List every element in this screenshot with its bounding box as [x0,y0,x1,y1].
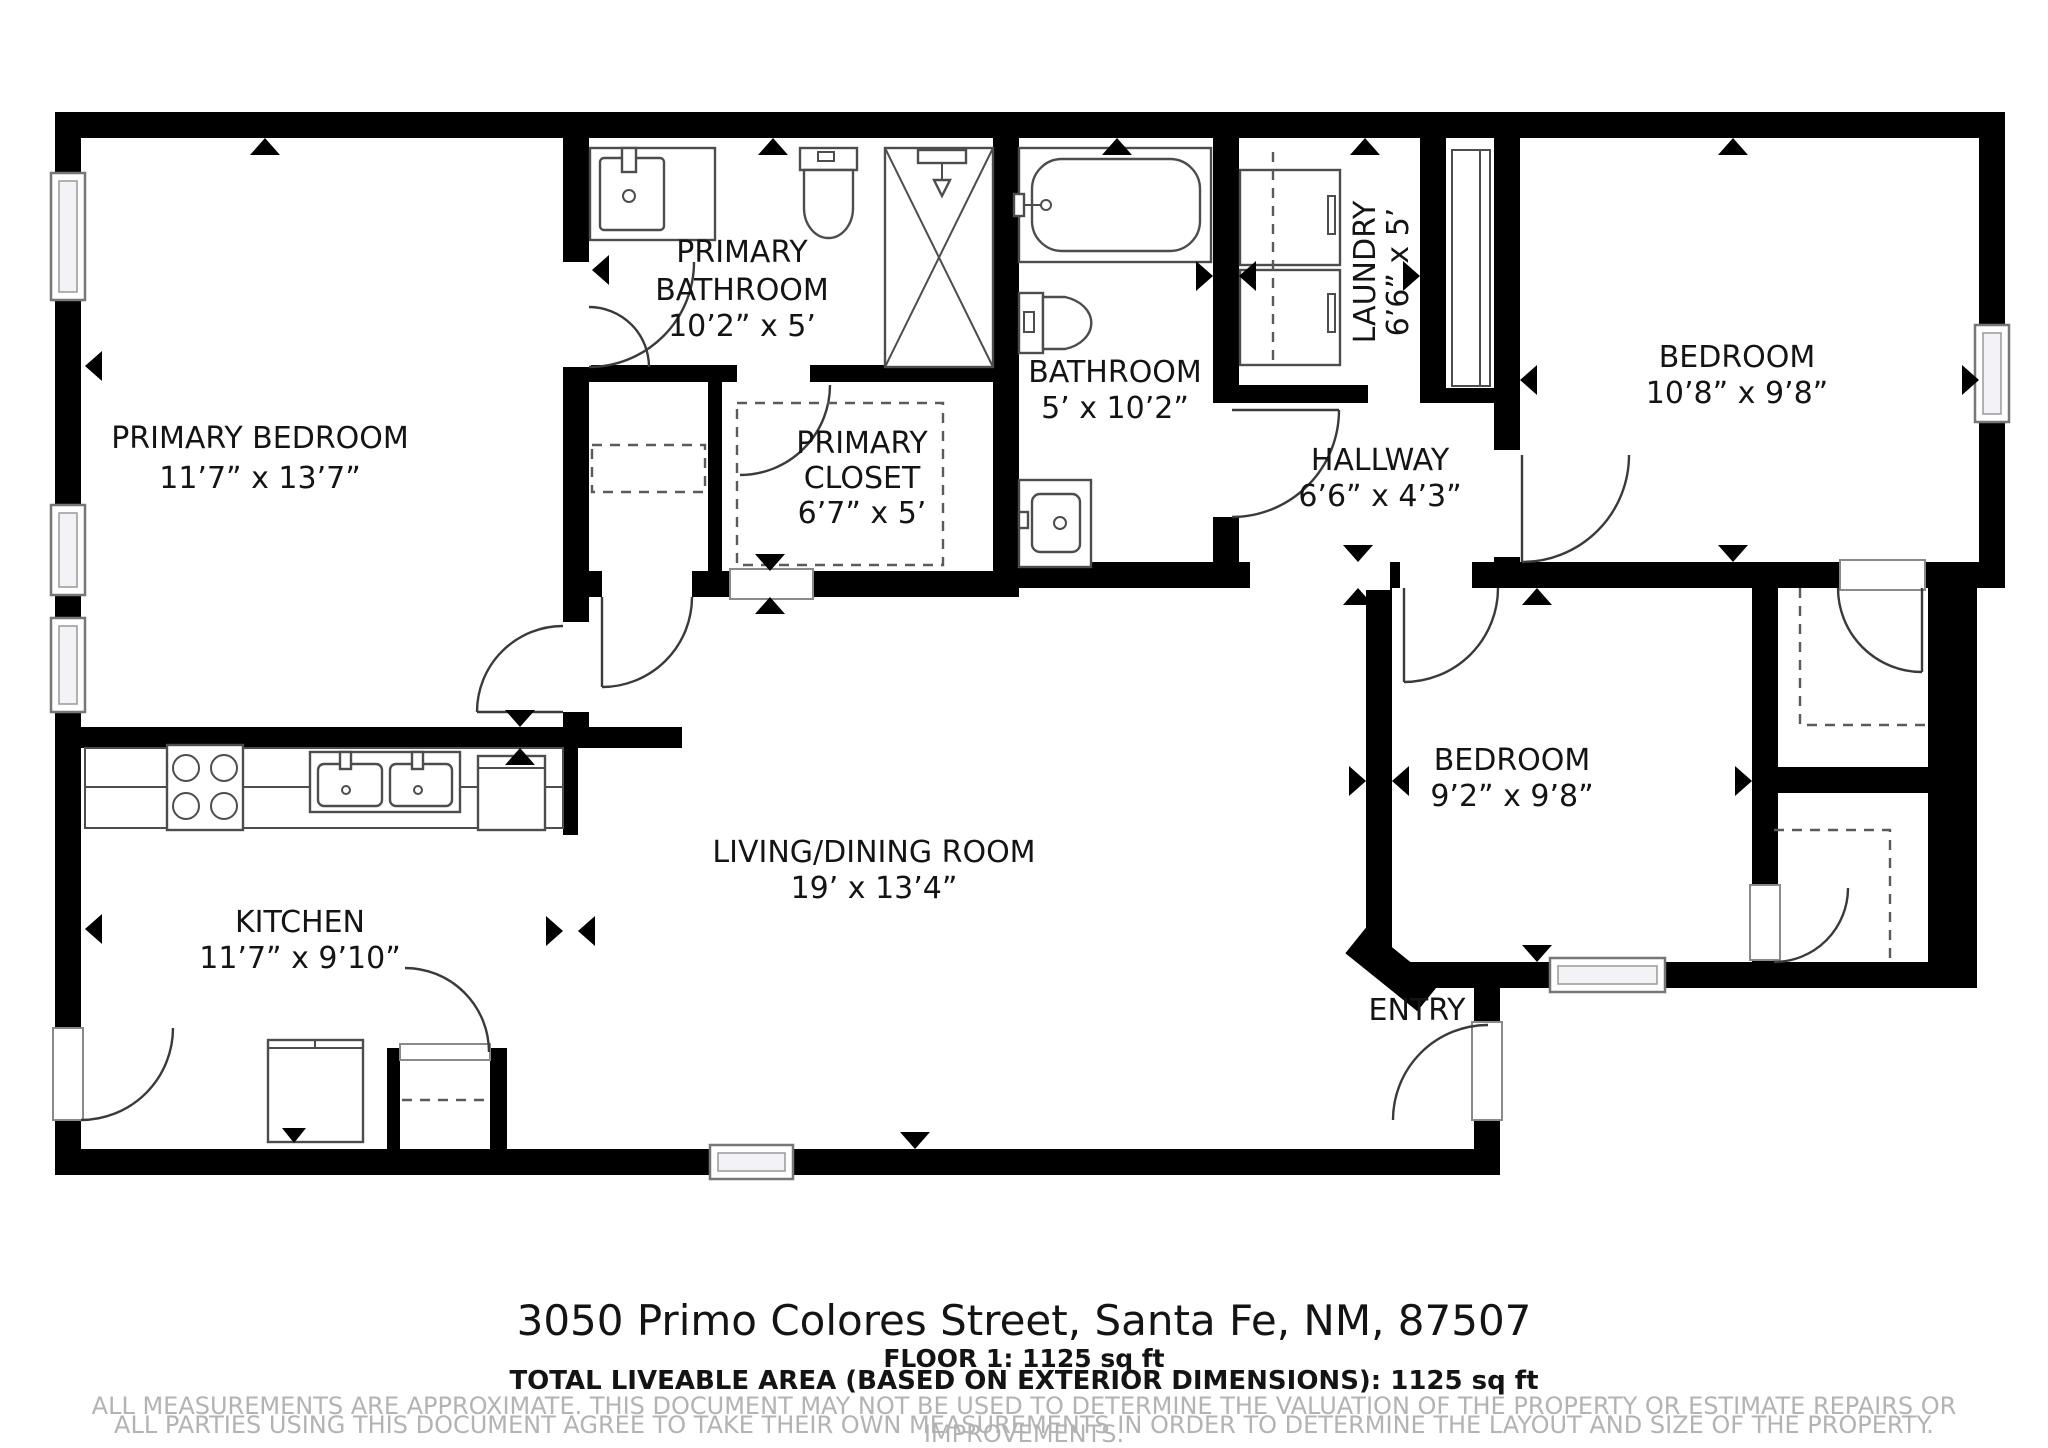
opening-bedroom1-door [1492,450,1522,557]
room-dims-primary-closet: 6’7” x 5’ [798,496,927,531]
disclaimer-line-2: ALL PARTIES USING THIS DOCUMENT AGREE TO… [0,1411,2048,1439]
room-dims-laundry: 6’6” x 5’ [1381,208,1416,337]
kitchen-island [268,1040,363,1143]
room-label-primary-bedroom: PRIMARY BEDROOM 11’7” x 13’7” [111,421,409,496]
opening-bathroom-door [1211,403,1241,517]
room-label-entry: ENTRY [1369,993,1467,1028]
room-label-primary-bathroom: PRIMARY BATHROOM 10’2” x 5’ [655,235,829,344]
window-bedroom2 [1550,958,1665,992]
floor-plan-page: PRIMARY BEDROOM 11’7” x 13’7” PRIMARY BA… [0,0,2048,1448]
door-upper-closet [1838,588,1922,672]
walls [55,112,2005,1175]
opening-hallway-living [1250,560,1390,590]
room-dims-bedroom-2: 9’2” x 9’8” [1430,779,1593,814]
linen-shelf [592,445,705,492]
lower-closet-rail [1774,830,1890,962]
toilet-icon [800,148,857,238]
window-primary-bedroom-lower [51,505,85,595]
wall-vestibule-stub [563,727,578,835]
window-living-room [710,1145,793,1179]
opening-entry-door [1472,1022,1502,1120]
floor-plan-drawing: PRIMARY BEDROOM 11’7” x 13’7” PRIMARY BA… [0,0,2048,1448]
wall-laundry-bottom [1239,385,1368,403]
room-name-primary-closet-1: PRIMARY [796,426,928,461]
wall-pantry-left [387,1048,400,1149]
dimension-markers [85,138,1979,1149]
toilet-2-icon [1019,293,1091,353]
room-label-primary-closet: PRIMARY CLOSET 6’7” x 5’ [796,426,928,531]
wall-entry-diagonal [1356,940,1428,998]
address-line: 3050 Primo Colores Street, Santa Fe, NM,… [0,1296,2048,1345]
shower-icon [885,148,993,367]
stove-icon [167,745,243,830]
room-name-primary-bedroom: PRIMARY BEDROOM [111,421,409,456]
wall-exterior-top [55,112,2005,138]
door-arc-primary-bath-2 [589,307,649,367]
room-name-laundry: LAUNDRY [1348,200,1383,343]
opening-kitchen-side-door [53,1028,83,1120]
opening-upper-closet-door [1840,560,1925,590]
window-bedroom1 [1975,325,2009,422]
opening-bedroom2-door [1400,560,1472,590]
room-name-primary-closet-2: CLOSET [804,461,921,496]
wall-kitchen-top [55,727,682,748]
wall-right-lower [1928,562,1977,988]
wall-pantry-right [490,1048,507,1149]
room-name-hallway: HALLWAY [1311,443,1450,478]
wall-linen-divider [708,382,722,571]
wall-bottom-right-band [1410,962,1977,988]
room-label-laundry: LAUNDRY 6’6” x 5’ [1348,200,1416,343]
room-label-bedroom-2: BEDROOM 9’2” x 9’8” [1430,743,1593,814]
door-pantry [405,968,489,1052]
opening-pantry [400,1044,490,1060]
door-arc-kitchen-side [81,1028,173,1120]
upper-closet-rail [1800,588,1928,725]
vanity-sink-icon [590,148,715,240]
room-name-bedroom-1: BEDROOM [1659,340,1816,375]
wall-bathroom-right [1213,138,1239,588]
laundry-cabinet [1452,150,1490,386]
opening-closet-top-door [737,363,810,384]
opening-closet-threshold [730,569,813,599]
room-dims-living-dining: 19’ x 13’4” [791,871,958,906]
room-label-kitchen: KITCHEN 11’7” x 9’10” [199,905,401,976]
room-label-hallway: HALLWAY 6’6” x 4’3” [1298,443,1461,514]
window-kitchen [51,618,85,712]
wall-closets-divider [1752,767,1928,793]
opening-lower-closet-door [1750,885,1780,960]
washer-icon [1240,170,1340,265]
wall-bedroom2-left [1366,562,1392,952]
bathroom-sink-icon [1019,480,1091,567]
door-bedroom1 [1522,455,1629,562]
door-bedroom2 [1404,588,1498,682]
wall-laundry-right [1420,138,1446,403]
room-name-living-dining: LIVING/DINING ROOM [712,835,1035,870]
room-dims-bedroom-1: 10’8” x 9’8” [1646,376,1828,411]
bathtub-icon [1014,148,1211,262]
door-linen-closet [602,597,692,687]
room-name-primary-bathroom-2: BATHROOM [655,273,829,308]
room-name-kitchen: KITCHEN [235,905,365,940]
room-dims-bathroom: 5’ x 10’2” [1041,391,1189,426]
room-dims-primary-bathroom: 10’2” x 5’ [668,309,816,344]
room-name-primary-bathroom-1: PRIMARY [676,235,808,270]
room-dims-hallway: 6’6” x 4’3” [1298,479,1461,514]
opening-linen-door [602,569,692,599]
room-name-entry: ENTRY [1369,993,1467,1028]
room-dims-primary-bedroom: 11’7” x 13’7” [159,461,361,496]
room-label-bathroom: BATHROOM 5’ x 10’2” [1028,355,1202,426]
door-primary-bedroom [477,626,563,712]
room-name-bedroom-2: BEDROOM [1434,743,1591,778]
opening-primary-bedroom-door [561,622,591,712]
fridge-icon [478,756,545,830]
window-primary-bedroom-upper [51,173,85,300]
opening-primary-bath-door [561,262,591,367]
door-arc-lower-closet [1774,888,1848,962]
room-name-bathroom: BATHROOM [1028,355,1202,390]
room-label-bedroom-1: BEDROOM 10’8” x 9’8” [1646,340,1828,411]
kitchen-sink-icon [310,752,460,812]
room-label-living-dining: LIVING/DINING ROOM 19’ x 13’4” [712,835,1035,906]
room-dims-kitchen: 11’7” x 9’10” [199,941,401,976]
